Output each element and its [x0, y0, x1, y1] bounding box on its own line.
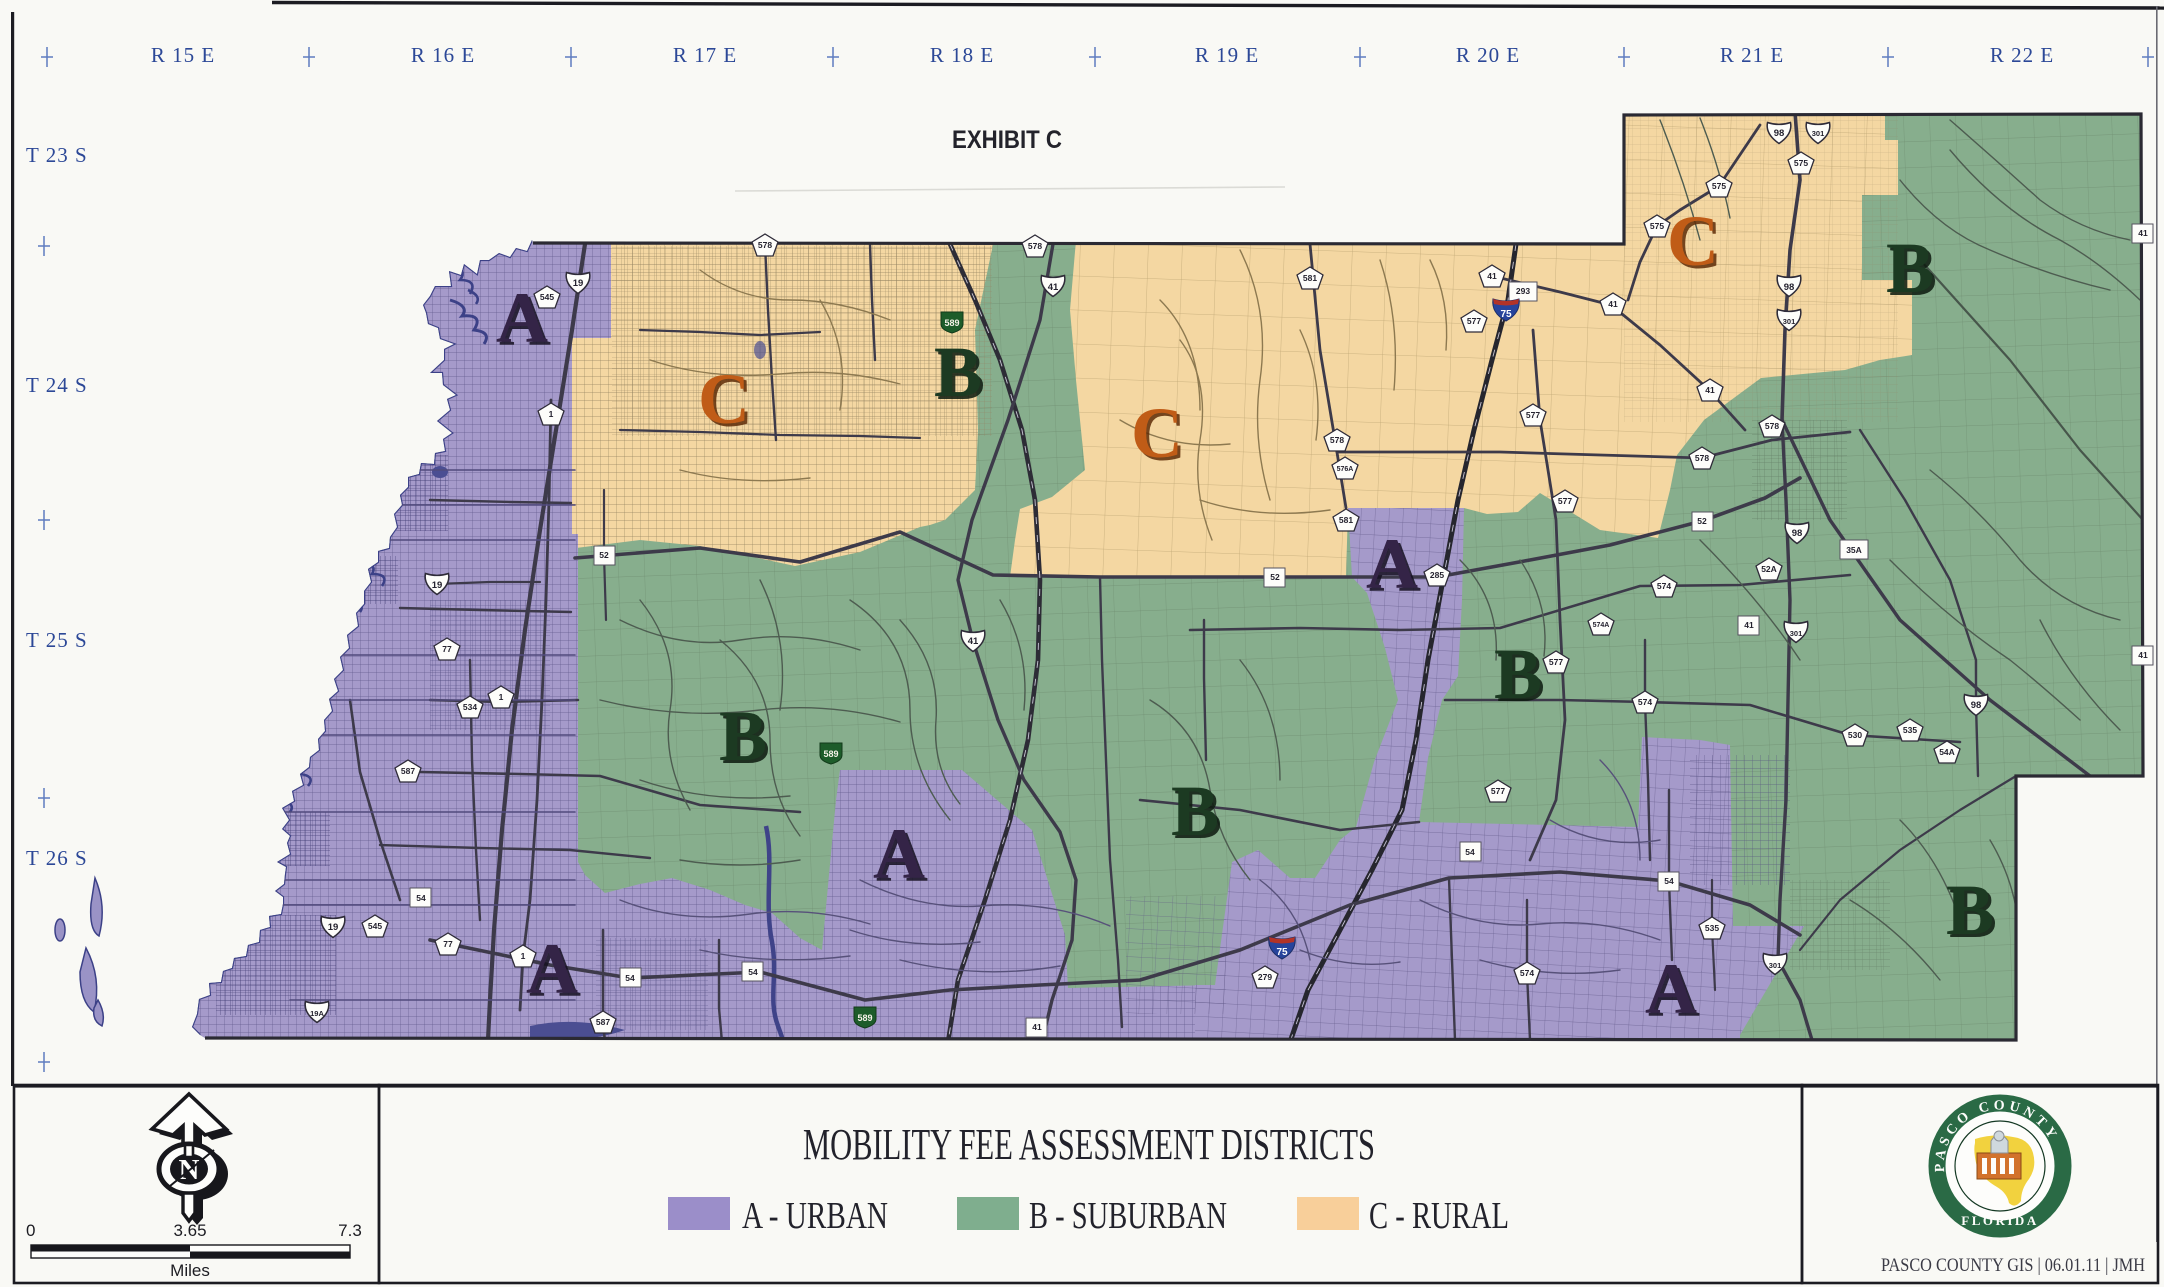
svg-text:52: 52 [599, 550, 609, 560]
svg-text:98: 98 [1792, 528, 1803, 539]
svg-text:577: 577 [1549, 657, 1563, 667]
svg-text:575: 575 [1712, 181, 1726, 191]
svg-text:T 24 S: T 24 S [26, 373, 88, 397]
svg-text:R 16 E: R 16 E [411, 43, 475, 67]
svg-text:545: 545 [368, 921, 382, 931]
svg-text:19: 19 [328, 922, 339, 933]
svg-text:577: 577 [1491, 786, 1505, 796]
svg-text:52A: 52A [1761, 564, 1777, 574]
svg-text:54: 54 [416, 893, 426, 903]
svg-text:B: B [1886, 228, 1934, 308]
svg-text:T 25 S: T 25 S [26, 628, 88, 652]
svg-text:574A: 574A [1593, 622, 1610, 629]
svg-text:574: 574 [1638, 697, 1652, 707]
svg-text:41: 41 [1032, 1022, 1042, 1032]
svg-text:3.65: 3.65 [173, 1221, 206, 1240]
svg-text:285: 285 [1430, 570, 1444, 580]
svg-text:98: 98 [1774, 128, 1785, 139]
svg-text:41: 41 [1487, 271, 1497, 281]
svg-text:1: 1 [549, 409, 554, 419]
svg-text:B: B [1946, 870, 1994, 950]
svg-text:19: 19 [573, 278, 584, 289]
svg-text:54: 54 [1664, 876, 1674, 886]
svg-text:578: 578 [1765, 421, 1779, 431]
svg-text:C - RURAL: C - RURAL [1369, 1195, 1509, 1237]
svg-text:54A: 54A [1939, 747, 1955, 757]
svg-text:A: A [873, 814, 925, 894]
svg-text:7.3: 7.3 [338, 1221, 362, 1240]
svg-text:A - URBAN: A - URBAN [742, 1195, 888, 1237]
svg-text:C: C [1667, 201, 1719, 281]
svg-text:279: 279 [1258, 972, 1272, 982]
svg-text:19: 19 [432, 580, 443, 591]
svg-text:41: 41 [2138, 228, 2148, 238]
svg-text:PASCO COUNTY GIS | 06.01.11 |: PASCO COUNTY GIS | 06.01.11 | JMH [1881, 1255, 2145, 1276]
svg-text:0: 0 [26, 1221, 35, 1240]
svg-text:535: 535 [1705, 923, 1719, 933]
svg-text:C: C [698, 359, 750, 439]
svg-text:T 26 S: T 26 S [26, 846, 88, 870]
svg-text:589: 589 [823, 749, 838, 759]
svg-text:41: 41 [1705, 385, 1715, 395]
svg-text:B: B [1494, 634, 1542, 714]
svg-text:578: 578 [1695, 453, 1709, 463]
svg-text:R 17 E: R 17 E [673, 43, 737, 67]
svg-text:54: 54 [748, 967, 758, 977]
svg-text:R 18 E: R 18 E [930, 43, 994, 67]
svg-text:578: 578 [1028, 241, 1042, 251]
svg-text:A: A [1366, 524, 1418, 604]
svg-text:301: 301 [1783, 317, 1796, 326]
svg-text:54: 54 [1465, 847, 1475, 857]
svg-text:581: 581 [1303, 273, 1317, 283]
svg-text:535: 535 [1903, 725, 1917, 735]
svg-text:R 22 E: R 22 E [1990, 43, 2054, 67]
svg-text:A: A [526, 929, 578, 1009]
svg-text:41: 41 [2138, 650, 2148, 660]
svg-text:T 23 S: T 23 S [26, 143, 88, 167]
svg-text:R 15 E: R 15 E [151, 43, 215, 67]
svg-text:B: B [719, 696, 767, 776]
svg-text:41: 41 [1744, 620, 1754, 630]
svg-text:577: 577 [1467, 316, 1481, 326]
svg-text:54: 54 [625, 973, 635, 983]
svg-text:293: 293 [1516, 286, 1530, 296]
svg-text:19A: 19A [310, 1009, 324, 1018]
svg-text:578: 578 [758, 240, 772, 250]
svg-text:B: B [1171, 771, 1219, 851]
svg-text:52: 52 [1697, 516, 1707, 526]
svg-text:35A: 35A [1846, 545, 1862, 555]
svg-text:75: 75 [1276, 947, 1288, 958]
svg-text:77: 77 [442, 644, 452, 654]
svg-text:534: 534 [463, 702, 477, 712]
svg-text:575: 575 [1794, 158, 1808, 168]
svg-text:530: 530 [1848, 730, 1862, 740]
svg-text:B - SUBURBAN: B - SUBURBAN [1029, 1195, 1227, 1237]
svg-text:B: B [934, 332, 982, 412]
svg-text:578: 578 [1330, 435, 1344, 445]
svg-text:577: 577 [1526, 410, 1540, 420]
svg-text:52: 52 [1270, 572, 1280, 582]
svg-text:589: 589 [944, 318, 959, 328]
svg-text:MOBILITY FEE ASSESSMENT DISTRI: MOBILITY FEE ASSESSMENT DISTRICTS [803, 1120, 1375, 1169]
svg-text:FLORIDA: FLORIDA [1961, 1213, 2038, 1228]
svg-text:587: 587 [401, 766, 415, 776]
svg-text:A: A [1645, 949, 1697, 1029]
svg-text:98: 98 [1784, 282, 1795, 293]
svg-text:574: 574 [1657, 581, 1671, 591]
svg-text:41: 41 [968, 636, 979, 647]
svg-text:574: 574 [1520, 968, 1534, 978]
svg-text:581: 581 [1339, 515, 1353, 525]
svg-text:A: A [496, 278, 548, 358]
svg-text:R 20 E: R 20 E [1456, 43, 1520, 67]
svg-text:589: 589 [857, 1013, 872, 1023]
svg-text:301: 301 [1812, 129, 1825, 138]
svg-text:Miles: Miles [170, 1261, 210, 1280]
svg-text:R 21 E: R 21 E [1720, 43, 1784, 67]
svg-text:R 19 E: R 19 E [1195, 43, 1259, 67]
svg-text:577: 577 [1558, 496, 1572, 506]
svg-text:301: 301 [1790, 629, 1803, 638]
svg-text:EXHIBIT C: EXHIBIT C [952, 126, 1062, 154]
svg-text:1: 1 [521, 951, 526, 961]
svg-text:41: 41 [1608, 299, 1618, 309]
svg-text:575: 575 [1650, 221, 1664, 231]
svg-text:587: 587 [596, 1017, 610, 1027]
svg-text:576A: 576A [1337, 466, 1354, 473]
svg-text:41: 41 [1048, 282, 1059, 293]
svg-text:301: 301 [1769, 961, 1782, 970]
svg-text:1: 1 [499, 692, 504, 702]
svg-text:77: 77 [443, 939, 453, 949]
svg-text:75: 75 [1500, 309, 1512, 320]
svg-text:C: C [1131, 393, 1183, 473]
svg-text:98: 98 [1971, 700, 1982, 711]
